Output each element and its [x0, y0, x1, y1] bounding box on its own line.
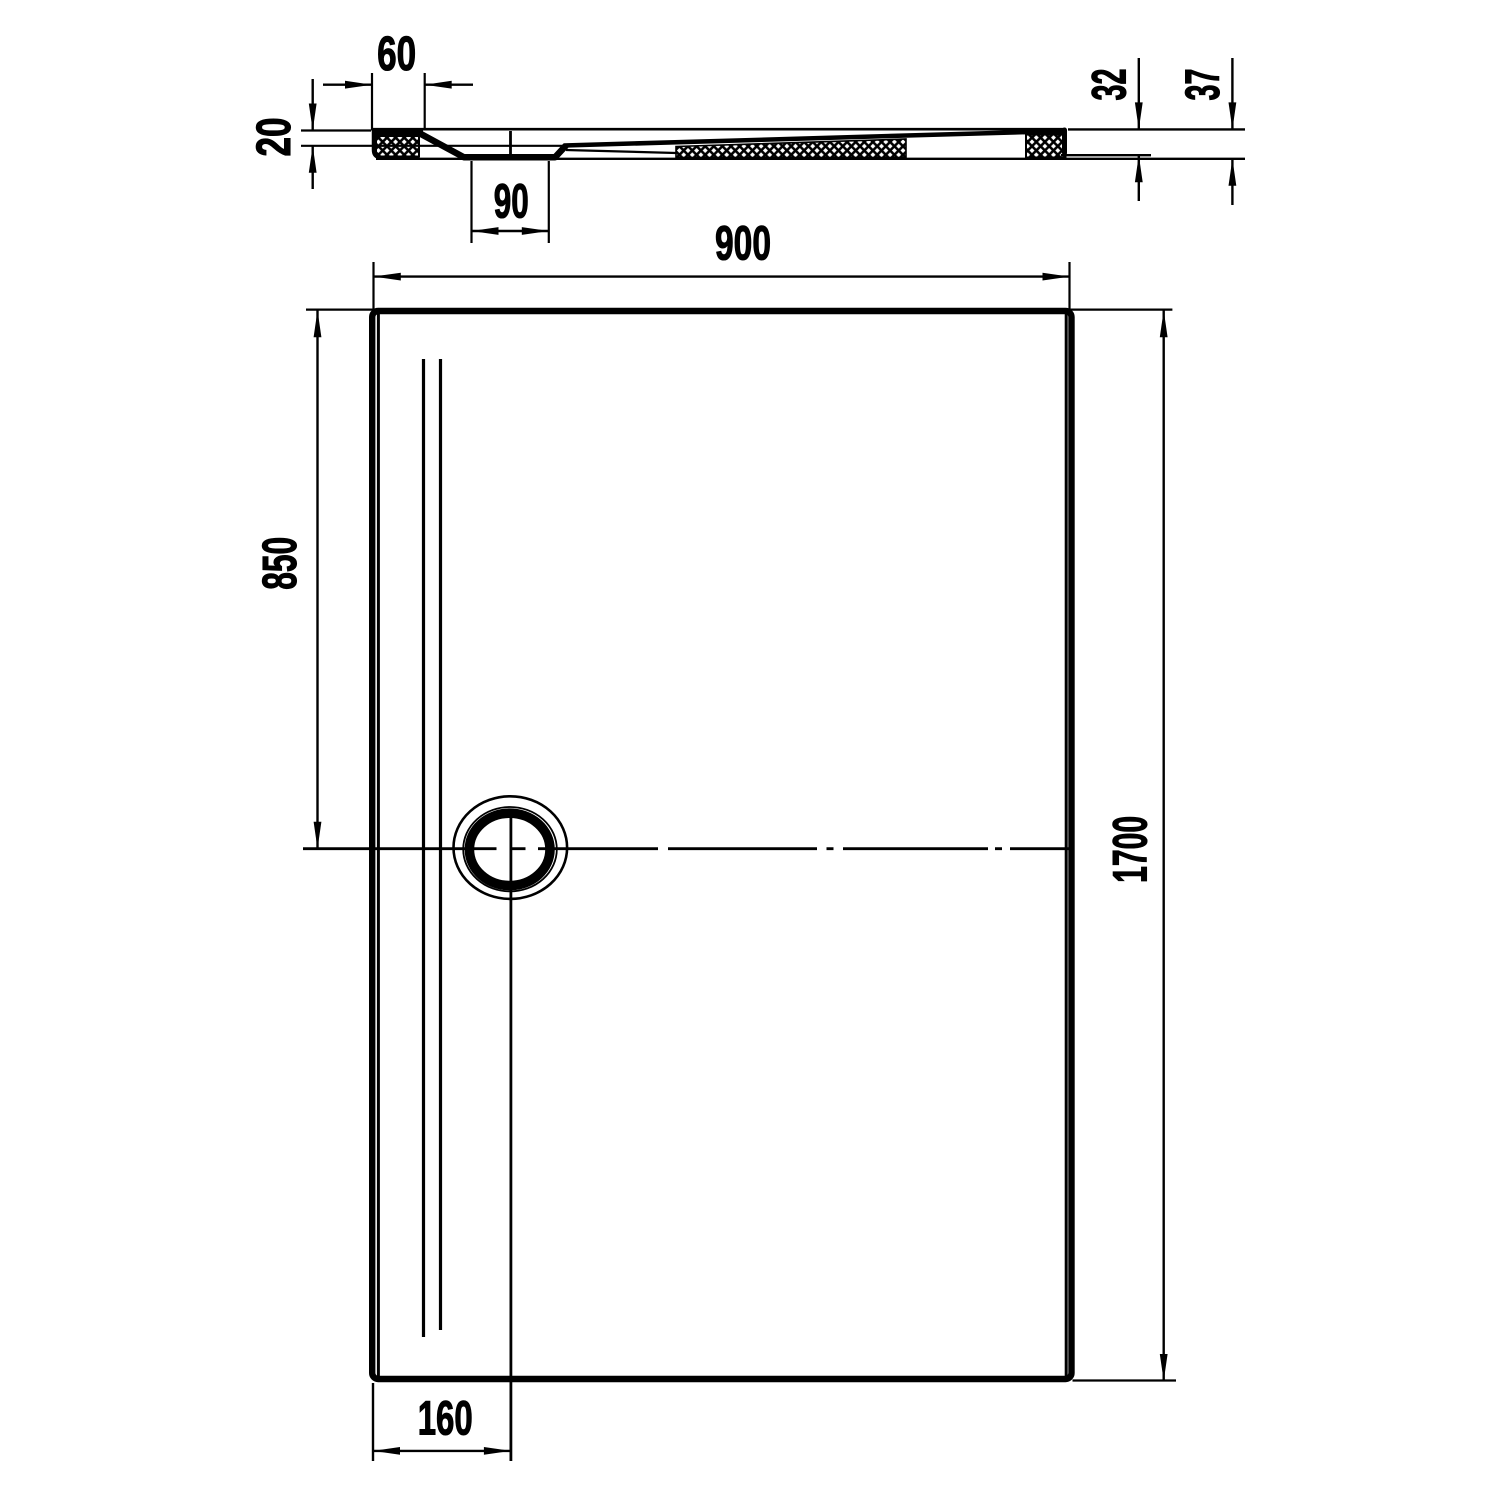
svg-text:60: 60	[377, 28, 416, 81]
svg-text:160: 160	[418, 1393, 473, 1446]
svg-text:32: 32	[1084, 69, 1137, 101]
svg-text:900: 900	[715, 217, 771, 270]
svg-text:37: 37	[1177, 69, 1230, 101]
svg-text:20: 20	[248, 118, 301, 157]
svg-text:850: 850	[254, 537, 307, 590]
svg-text:90: 90	[494, 175, 529, 228]
svg-text:1700: 1700	[1105, 816, 1158, 883]
